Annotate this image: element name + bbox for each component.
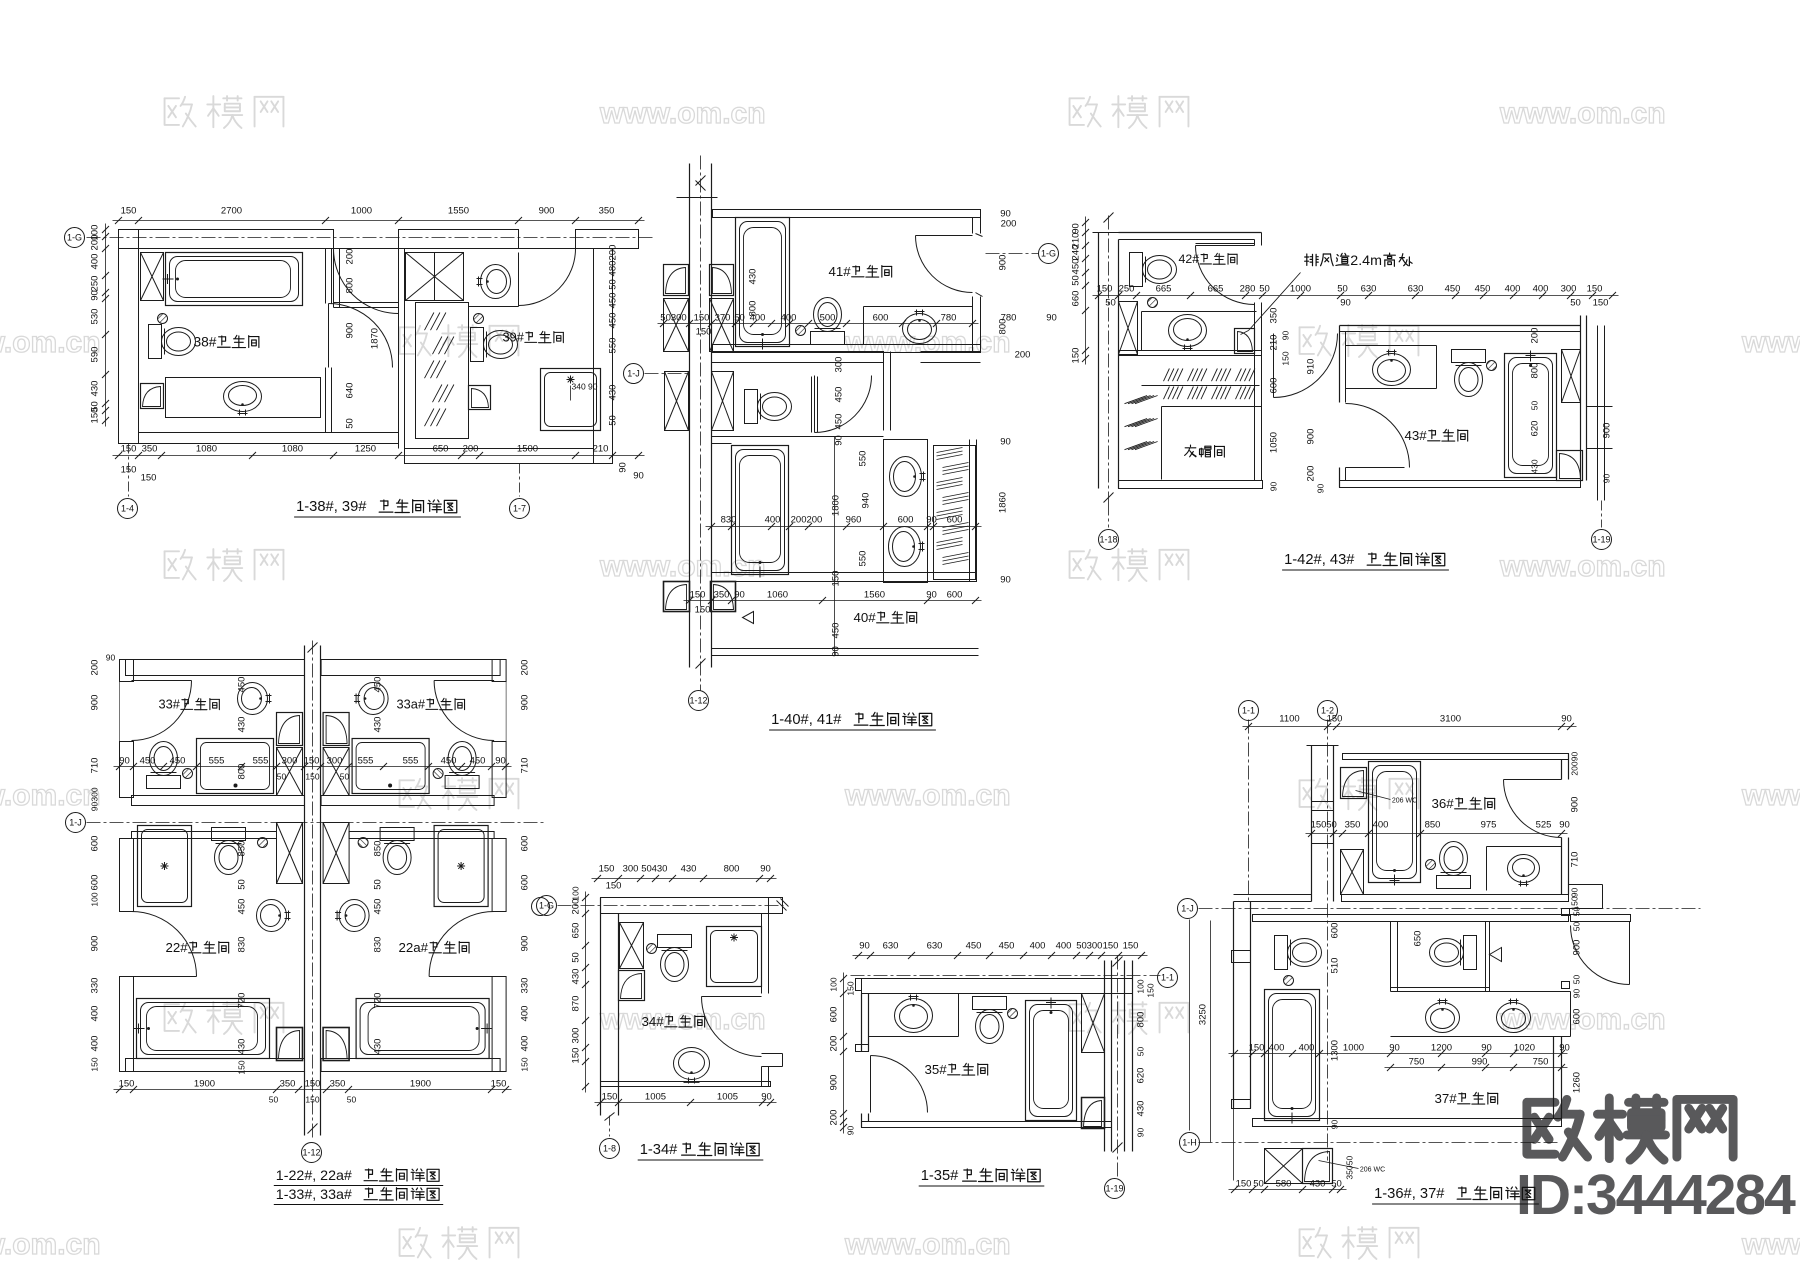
svg-text:150: 150 xyxy=(90,408,101,424)
svg-text:555: 555 xyxy=(403,756,419,767)
svg-text:1250: 1250 xyxy=(355,444,376,455)
svg-text:400: 400 xyxy=(520,1036,531,1052)
svg-text:1-J: 1-J xyxy=(1181,904,1194,914)
svg-text:800: 800 xyxy=(748,301,759,317)
svg-text:650: 650 xyxy=(1413,931,1424,947)
svg-text:90: 90 xyxy=(1389,1043,1400,1054)
svg-text:90: 90 xyxy=(1046,313,1057,324)
svg-text:200: 200 xyxy=(90,660,101,676)
svg-text:1-12: 1-12 xyxy=(689,696,707,706)
svg-text:90: 90 xyxy=(1000,437,1011,448)
svg-text:900: 900 xyxy=(1602,423,1613,439)
svg-text:450: 450 xyxy=(1445,284,1461,295)
svg-text:50: 50 xyxy=(345,418,356,429)
svg-text:150: 150 xyxy=(1097,284,1113,295)
svg-text:400: 400 xyxy=(781,313,797,324)
svg-text:300: 300 xyxy=(282,756,298,767)
svg-text:www.om.cn: www.om.cn xyxy=(1741,1228,1800,1261)
svg-text:1-G: 1-G xyxy=(1041,249,1056,259)
svg-text:350: 350 xyxy=(599,206,615,217)
svg-text:1080: 1080 xyxy=(282,444,303,455)
svg-text:710: 710 xyxy=(90,758,101,774)
svg-text:35#: 35# xyxy=(925,1062,948,1077)
svg-text:800: 800 xyxy=(998,319,1009,335)
svg-text:400: 400 xyxy=(90,254,101,270)
svg-text:90: 90 xyxy=(1000,575,1011,586)
svg-text:50: 50 xyxy=(1570,298,1581,309)
svg-text:100: 100 xyxy=(1136,979,1146,993)
svg-text:550: 550 xyxy=(608,338,619,354)
svg-text:430: 430 xyxy=(571,969,582,985)
svg-text:42#: 42# xyxy=(1179,252,1200,266)
svg-text:870: 870 xyxy=(571,996,582,1012)
svg-text:90: 90 xyxy=(1071,223,1082,234)
svg-text:www.om.cn: www.om.cn xyxy=(599,1003,766,1036)
svg-text:200: 200 xyxy=(463,444,479,455)
svg-text:1-18: 1-18 xyxy=(1099,535,1117,545)
svg-text:90: 90 xyxy=(1281,331,1291,341)
svg-text:1-38#, 39#: 1-38#, 39# xyxy=(296,499,367,515)
svg-text:150: 150 xyxy=(121,206,137,217)
svg-text:300: 300 xyxy=(1087,941,1103,952)
svg-text:100: 100 xyxy=(829,977,839,991)
svg-text:430: 430 xyxy=(681,864,697,875)
svg-text:780: 780 xyxy=(941,313,957,324)
svg-text:350: 350 xyxy=(714,590,730,601)
svg-text:430: 430 xyxy=(90,381,101,397)
svg-text:910: 910 xyxy=(1306,359,1317,375)
svg-text:90: 90 xyxy=(106,653,116,663)
svg-text:600: 600 xyxy=(1330,923,1341,939)
svg-text:900: 900 xyxy=(1570,797,1581,813)
svg-text:580: 580 xyxy=(1276,1179,1292,1190)
svg-text:300: 300 xyxy=(1561,284,1577,295)
svg-text:200: 200 xyxy=(520,660,531,676)
svg-text:710: 710 xyxy=(520,758,531,774)
svg-text:1-H: 1-H xyxy=(1182,1138,1197,1148)
svg-text:90: 90 xyxy=(119,756,130,767)
svg-text:150: 150 xyxy=(1146,983,1156,997)
svg-text:900: 900 xyxy=(90,695,101,711)
svg-text:90: 90 xyxy=(1570,888,1580,898)
svg-text:50: 50 xyxy=(571,952,582,963)
svg-text:900: 900 xyxy=(539,206,555,217)
svg-text:50: 50 xyxy=(1337,284,1348,295)
svg-text:www.om.cn: www.om.cn xyxy=(1499,97,1666,130)
svg-text:1020: 1020 xyxy=(1514,1043,1535,1054)
svg-text:50: 50 xyxy=(1326,820,1337,831)
svg-text:480: 480 xyxy=(608,261,619,277)
svg-text:1300: 1300 xyxy=(1330,1040,1341,1061)
svg-text:620: 620 xyxy=(1530,421,1541,437)
svg-text:510: 510 xyxy=(1330,958,1341,974)
svg-text:90: 90 xyxy=(834,435,845,446)
svg-text:90: 90 xyxy=(761,1092,772,1103)
svg-text:206 WC: 206 WC xyxy=(1392,798,1417,805)
svg-text:90: 90 xyxy=(859,941,870,952)
svg-text:90: 90 xyxy=(760,864,771,875)
svg-text:33#: 33# xyxy=(159,697,181,712)
svg-text:800: 800 xyxy=(1530,363,1541,379)
svg-text:40#: 40# xyxy=(854,610,877,625)
svg-text:1-J: 1-J xyxy=(69,818,82,828)
svg-text:210: 210 xyxy=(1269,335,1280,351)
svg-text:50: 50 xyxy=(734,313,745,324)
svg-text:300: 300 xyxy=(571,1028,582,1044)
svg-text:350: 350 xyxy=(1345,820,1361,831)
svg-text:900: 900 xyxy=(998,255,1009,271)
svg-text:975: 975 xyxy=(1481,820,1497,831)
svg-text:150: 150 xyxy=(491,1079,507,1090)
svg-text:200200: 200200 xyxy=(791,515,823,526)
svg-text:720: 720 xyxy=(237,993,248,1009)
svg-text:200: 200 xyxy=(608,245,619,261)
svg-text:900: 900 xyxy=(1306,429,1317,445)
svg-text:50: 50 xyxy=(277,772,287,782)
svg-text:450: 450 xyxy=(140,756,156,767)
svg-text:940: 940 xyxy=(861,493,872,509)
svg-text:850: 850 xyxy=(237,841,248,857)
svg-text:50: 50 xyxy=(1259,284,1270,295)
svg-text:430: 430 xyxy=(1530,459,1540,473)
svg-text:450: 450 xyxy=(831,623,842,639)
svg-text:1005: 1005 xyxy=(717,1092,738,1103)
svg-text:50: 50 xyxy=(1071,275,1082,286)
svg-text:150: 150 xyxy=(1311,820,1327,831)
svg-text:1-4: 1-4 xyxy=(121,504,134,514)
svg-text:630: 630 xyxy=(1408,284,1424,295)
svg-text:1060: 1060 xyxy=(767,590,788,601)
svg-text:450: 450 xyxy=(966,941,982,952)
svg-text:www.om.cn: www.om.cn xyxy=(844,1228,1011,1261)
svg-text:720: 720 xyxy=(373,993,384,1009)
svg-text:200: 200 xyxy=(345,249,356,265)
svg-text:50: 50 xyxy=(373,879,384,890)
svg-text:90: 90 xyxy=(926,590,937,601)
svg-text:1-1: 1-1 xyxy=(1161,973,1174,983)
svg-text:150: 150 xyxy=(831,571,842,587)
svg-text:90: 90 xyxy=(1316,484,1326,494)
svg-text:960: 960 xyxy=(846,515,862,526)
svg-text:330: 330 xyxy=(90,978,101,994)
svg-text:1200: 1200 xyxy=(1431,1043,1452,1054)
svg-text:150: 150 xyxy=(846,981,856,995)
svg-text:430: 430 xyxy=(373,717,384,733)
svg-text:450: 450 xyxy=(1071,259,1082,275)
svg-text:450: 450 xyxy=(441,756,457,767)
svg-text:590: 590 xyxy=(90,347,101,363)
svg-text:50: 50 xyxy=(1136,1047,1146,1057)
svg-text:600: 600 xyxy=(1572,1009,1583,1025)
svg-text:300: 300 xyxy=(623,864,639,875)
svg-text:www.om.cn: www.om.cn xyxy=(0,779,101,812)
svg-text:www.om.cn: www.om.cn xyxy=(599,550,766,583)
svg-text:500: 500 xyxy=(820,313,836,324)
svg-text:37#: 37# xyxy=(1435,1091,1458,1106)
svg-text:200: 200 xyxy=(829,1110,840,1126)
svg-text:400: 400 xyxy=(1269,1043,1285,1054)
svg-text:350: 350 xyxy=(1345,1165,1355,1179)
svg-text:450: 450 xyxy=(170,756,186,767)
svg-text:200: 200 xyxy=(1530,328,1541,344)
svg-text:200: 200 xyxy=(1570,761,1580,775)
svg-text:50: 50 xyxy=(340,772,350,782)
svg-text:150: 150 xyxy=(305,1079,321,1090)
svg-text:710: 710 xyxy=(1570,852,1581,868)
svg-text:280: 280 xyxy=(1240,284,1256,295)
svg-text:830: 830 xyxy=(373,937,384,953)
svg-text:150: 150 xyxy=(1123,941,1139,952)
svg-text:1-8: 1-8 xyxy=(603,1144,616,1154)
svg-text:1100: 1100 xyxy=(1279,714,1299,725)
svg-text:665: 665 xyxy=(1208,284,1224,295)
svg-text:450: 450 xyxy=(834,414,845,430)
svg-text:1-34#: 1-34# xyxy=(640,1142,678,1158)
svg-text:1000: 1000 xyxy=(1290,284,1311,295)
svg-text:450: 450 xyxy=(373,677,384,693)
svg-text:150: 150 xyxy=(305,772,319,782)
svg-text:450: 450 xyxy=(608,293,619,309)
svg-text:430: 430 xyxy=(608,385,619,401)
svg-text:400: 400 xyxy=(520,1006,531,1022)
svg-text:1-19: 1-19 xyxy=(1592,535,1610,545)
svg-text:3250: 3250 xyxy=(1198,1004,1209,1025)
svg-text:1-12: 1-12 xyxy=(302,1148,320,1158)
svg-text:1-22#, 22a#: 1-22#, 22a# xyxy=(276,1168,352,1184)
svg-text:90: 90 xyxy=(846,1126,856,1136)
svg-text:36#: 36# xyxy=(1432,796,1455,811)
svg-text:430: 430 xyxy=(237,717,248,733)
svg-text:430: 430 xyxy=(748,269,759,285)
svg-text:90: 90 xyxy=(90,802,100,812)
svg-text:50: 50 xyxy=(269,1095,279,1105)
svg-text:150: 150 xyxy=(304,756,320,767)
svg-text:750: 750 xyxy=(1409,1057,1425,1068)
svg-text:150: 150 xyxy=(599,864,615,875)
svg-text:2700: 2700 xyxy=(221,206,242,217)
svg-text:850: 850 xyxy=(1425,820,1441,831)
svg-text:350: 350 xyxy=(1269,308,1280,324)
svg-text:150: 150 xyxy=(1281,351,1291,365)
svg-text:430: 430 xyxy=(1136,1101,1147,1117)
svg-text:650: 650 xyxy=(571,923,582,939)
svg-text:665: 665 xyxy=(1156,284,1172,295)
svg-text:400: 400 xyxy=(1505,284,1521,295)
svg-text:22#: 22# xyxy=(166,940,189,955)
svg-text:200: 200 xyxy=(1001,219,1017,230)
svg-text:206 WC: 206 WC xyxy=(1360,1167,1385,1174)
svg-text:555: 555 xyxy=(358,756,374,767)
svg-text:600: 600 xyxy=(520,875,531,891)
svg-text:800: 800 xyxy=(345,278,356,294)
svg-text:www.om.cn: www.om.cn xyxy=(1741,326,1800,359)
svg-text:1-42#, 43#: 1-42#, 43# xyxy=(1284,552,1355,568)
svg-text:150: 150 xyxy=(695,605,711,616)
svg-text:150: 150 xyxy=(1071,348,1082,364)
svg-text:1800: 1800 xyxy=(831,495,842,516)
svg-text:150: 150 xyxy=(1593,298,1609,309)
svg-text:450: 450 xyxy=(999,941,1015,952)
svg-text:90: 90 xyxy=(734,590,745,601)
svg-text:450: 450 xyxy=(373,899,384,915)
svg-text:555: 555 xyxy=(209,756,225,767)
svg-text:600: 600 xyxy=(873,313,889,324)
svg-text:150: 150 xyxy=(237,1060,247,1074)
svg-text:90: 90 xyxy=(1602,474,1612,484)
svg-text:370: 370 xyxy=(715,313,731,324)
svg-text:100: 100 xyxy=(571,886,581,900)
svg-text:1-19: 1-19 xyxy=(1105,1184,1123,1194)
svg-text:38#: 38# xyxy=(194,334,217,349)
svg-text:550: 550 xyxy=(858,551,869,567)
svg-text:990: 990 xyxy=(1472,1057,1488,1068)
svg-text:1050: 1050 xyxy=(1269,432,1280,453)
svg-text:50: 50 xyxy=(1572,922,1582,932)
svg-text:1-7: 1-7 xyxy=(513,504,526,514)
svg-text:620: 620 xyxy=(1136,1068,1147,1084)
svg-text:340 90: 340 90 xyxy=(572,382,598,392)
svg-text:150: 150 xyxy=(1327,714,1343,725)
svg-text:www.om.cn: www.om.cn xyxy=(0,326,101,359)
svg-text:1-36#, 37#: 1-36#, 37# xyxy=(1374,1186,1445,1202)
svg-text:50: 50 xyxy=(641,864,652,875)
svg-text:1550: 1550 xyxy=(448,206,469,217)
svg-text:39#: 39# xyxy=(503,330,525,345)
svg-text:350: 350 xyxy=(142,444,158,455)
svg-text:350: 350 xyxy=(280,1079,296,1090)
svg-text:450: 450 xyxy=(237,899,248,915)
svg-text:150: 150 xyxy=(141,473,157,484)
svg-text:450: 450 xyxy=(1475,284,1491,295)
svg-text:200: 200 xyxy=(1306,466,1317,482)
svg-text:50: 50 xyxy=(608,415,619,426)
svg-text:600: 600 xyxy=(947,515,963,526)
svg-text:1-40#, 41#: 1-40#, 41# xyxy=(771,712,842,728)
svg-text:300: 300 xyxy=(327,756,343,767)
svg-text:600: 600 xyxy=(898,515,914,526)
svg-text:400: 400 xyxy=(90,1006,101,1022)
svg-text:660: 660 xyxy=(1071,291,1082,307)
svg-text:525: 525 xyxy=(1536,820,1552,831)
svg-text:350: 350 xyxy=(330,1079,346,1090)
svg-text:300: 300 xyxy=(90,787,100,801)
svg-text:150: 150 xyxy=(305,1095,319,1105)
svg-text:1260: 1260 xyxy=(1572,1072,1583,1093)
svg-text:150: 150 xyxy=(690,590,706,601)
svg-text:550: 550 xyxy=(858,451,869,467)
svg-text:600: 600 xyxy=(829,1007,840,1023)
svg-text:400: 400 xyxy=(1373,820,1389,831)
svg-text:1870: 1870 xyxy=(370,328,381,349)
svg-text:800: 800 xyxy=(1136,1012,1147,1028)
svg-text:400: 400 xyxy=(1056,941,1072,952)
svg-text:900: 900 xyxy=(345,323,356,339)
svg-text:90: 90 xyxy=(1481,1043,1492,1054)
svg-text:150: 150 xyxy=(119,1079,135,1090)
svg-text:90: 90 xyxy=(1559,1043,1570,1054)
svg-text:150: 150 xyxy=(1587,284,1603,295)
svg-text:400: 400 xyxy=(1299,1043,1315,1054)
svg-text:1900: 1900 xyxy=(410,1079,431,1090)
svg-text:600: 600 xyxy=(1269,378,1280,394)
svg-text:430: 430 xyxy=(1310,1179,1326,1190)
svg-text:90: 90 xyxy=(1269,482,1279,492)
svg-text:150: 150 xyxy=(1236,1179,1252,1190)
svg-text:330: 330 xyxy=(520,978,531,994)
svg-text:600: 600 xyxy=(947,590,963,601)
svg-text:900: 900 xyxy=(829,1075,840,1091)
svg-text:800: 800 xyxy=(237,764,248,780)
svg-text:150: 150 xyxy=(1249,1043,1265,1054)
svg-text:90: 90 xyxy=(618,462,629,473)
svg-text:650: 650 xyxy=(433,444,449,455)
svg-text:250: 250 xyxy=(90,276,101,292)
svg-text:90: 90 xyxy=(495,756,506,767)
svg-text:210: 210 xyxy=(593,444,609,455)
svg-text:400: 400 xyxy=(1533,284,1549,295)
svg-text:1000: 1000 xyxy=(351,206,372,217)
svg-text:50: 50 xyxy=(1572,975,1582,985)
svg-text:900: 900 xyxy=(1572,940,1583,956)
svg-text:50: 50 xyxy=(1253,1179,1264,1190)
svg-text:50: 50 xyxy=(1345,1156,1355,1166)
svg-text:1-J: 1-J xyxy=(627,369,640,379)
svg-text:90: 90 xyxy=(633,471,644,482)
svg-text:100: 100 xyxy=(90,892,100,906)
svg-text:50: 50 xyxy=(1076,941,1087,952)
svg-text:600: 600 xyxy=(90,875,101,891)
svg-text:600: 600 xyxy=(520,836,531,852)
svg-text:3100: 3100 xyxy=(1440,714,1461,725)
svg-text:1-33#, 33a#: 1-33#, 33a# xyxy=(276,1187,352,1203)
svg-text:900: 900 xyxy=(520,695,531,711)
svg-text:750: 750 xyxy=(1533,1057,1549,1068)
svg-text:200: 200 xyxy=(829,1036,840,1052)
svg-text:90: 90 xyxy=(90,290,101,301)
svg-text:250: 250 xyxy=(1119,284,1135,295)
svg-text:1-G: 1-G xyxy=(67,233,82,243)
svg-text:1005: 1005 xyxy=(645,1092,666,1103)
svg-text:1560: 1560 xyxy=(864,590,885,601)
svg-text:www.om.cn: www.om.cn xyxy=(599,97,766,130)
svg-text:240: 240 xyxy=(1071,245,1082,261)
svg-text:1860: 1860 xyxy=(998,492,1009,513)
svg-text:1-35#: 1-35# xyxy=(921,1168,959,1184)
svg-text:150: 150 xyxy=(520,1057,530,1071)
svg-text:50: 50 xyxy=(347,1095,357,1105)
svg-text:www.om.cn: www.om.cn xyxy=(1499,550,1666,583)
svg-text:50: 50 xyxy=(1105,298,1116,309)
svg-text:22a#: 22a# xyxy=(399,940,429,955)
svg-text:150: 150 xyxy=(696,327,712,338)
svg-text:450: 450 xyxy=(470,756,486,767)
svg-text:800: 800 xyxy=(724,864,740,875)
svg-text:850: 850 xyxy=(373,841,384,857)
svg-text:630: 630 xyxy=(1361,284,1377,295)
svg-text:640: 640 xyxy=(345,383,356,399)
svg-text:90: 90 xyxy=(1340,298,1351,309)
svg-text:ID:3444284: ID:3444284 xyxy=(1516,1163,1796,1227)
svg-text:90: 90 xyxy=(1559,820,1570,831)
svg-text:150: 150 xyxy=(90,1057,100,1071)
svg-text:2.4m: 2.4m xyxy=(1350,253,1382,269)
svg-text:150: 150 xyxy=(1103,941,1119,952)
svg-text:1900: 1900 xyxy=(194,1079,215,1090)
svg-text:www.om.cn: www.om.cn xyxy=(844,779,1011,812)
svg-text:830: 830 xyxy=(721,515,737,526)
svg-text:450: 450 xyxy=(834,387,845,403)
svg-text:50: 50 xyxy=(1572,907,1582,917)
